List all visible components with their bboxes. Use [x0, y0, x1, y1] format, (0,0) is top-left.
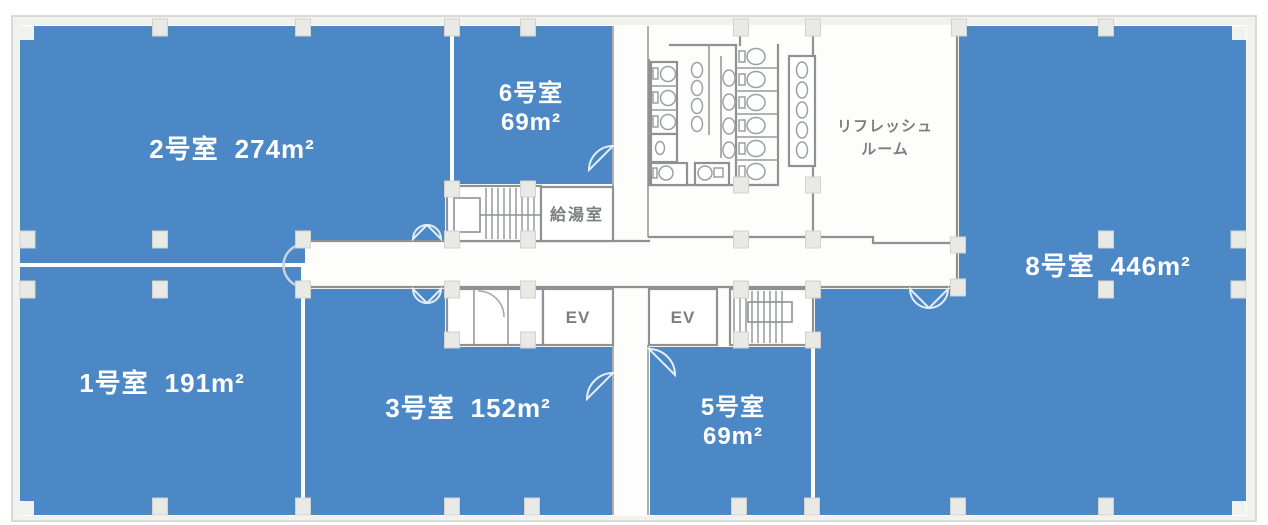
- floor-plan: 給湯室: [0, 0, 1268, 525]
- kitchenette-label: 給湯室: [550, 205, 604, 224]
- elevator-east: EV: [649, 289, 717, 345]
- elevator-west: EV: [543, 289, 613, 345]
- refresh-room-label-line2: ルーム: [861, 141, 909, 158]
- refresh-room-label-line1: リフレッシュ: [837, 118, 933, 135]
- room-5-label-name: 5号室: [701, 393, 765, 421]
- room-6-label-name: 6号室: [499, 79, 563, 107]
- elevator-east-label: EV: [671, 308, 696, 327]
- room-1-shape: [20, 267, 301, 515]
- floor-plan-canvas: 給湯室: [0, 0, 1268, 525]
- room-6-label-area: 69m²: [501, 109, 561, 136]
- kitchenette-room: 給湯室: [541, 187, 613, 241]
- room-5-label-area: 69m²: [703, 423, 763, 450]
- elevator-west-label: EV: [566, 308, 591, 327]
